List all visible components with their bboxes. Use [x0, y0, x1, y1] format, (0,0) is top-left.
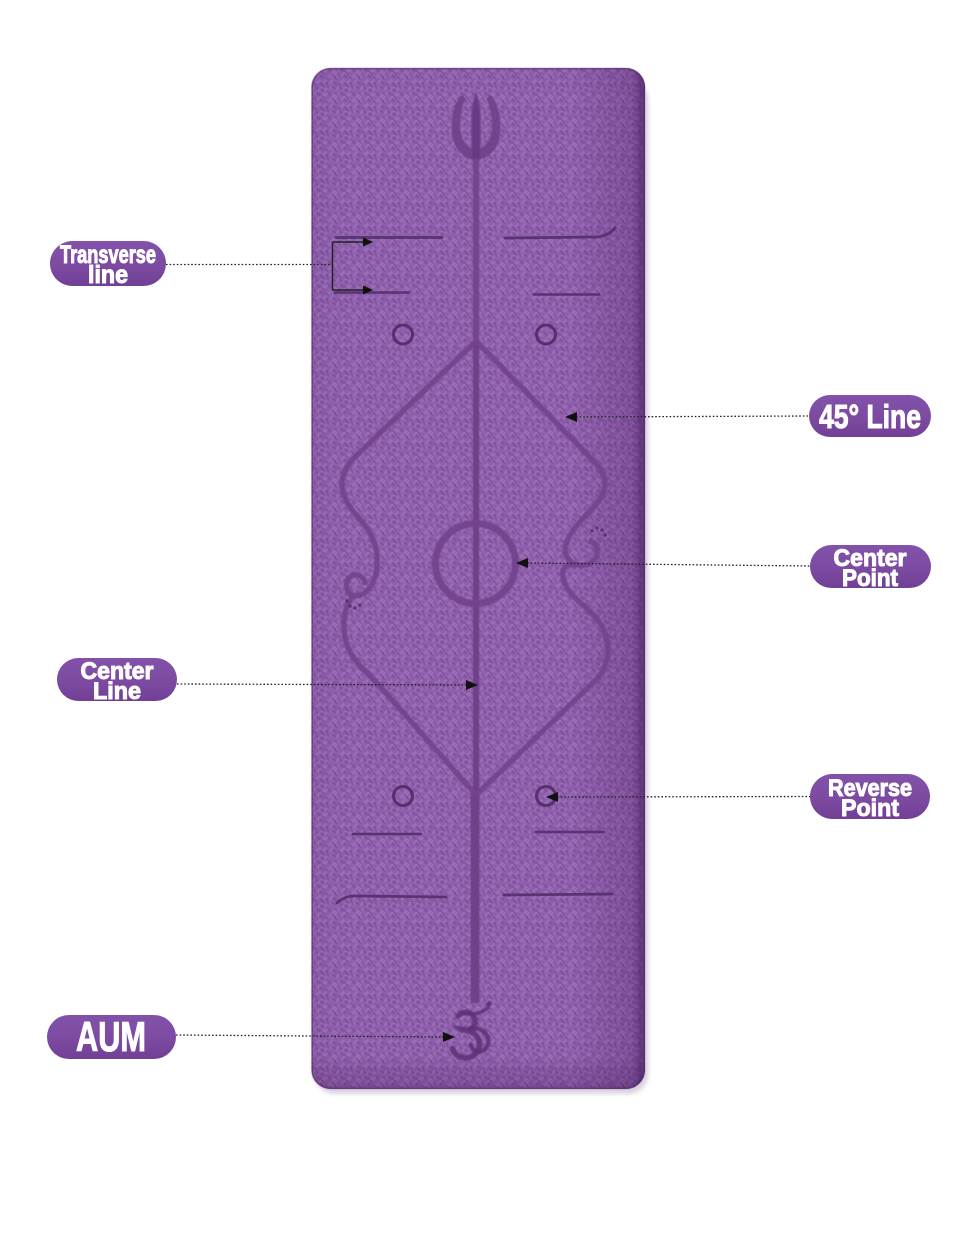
svg-text:45° Line: 45° Line [819, 398, 921, 435]
svg-text:Line: Line [93, 678, 141, 705]
svg-text:Point: Point [841, 795, 899, 822]
svg-text:Point: Point [842, 565, 898, 592]
svg-text:line: line [88, 261, 128, 289]
svg-text:AUM: AUM [76, 1013, 146, 1060]
